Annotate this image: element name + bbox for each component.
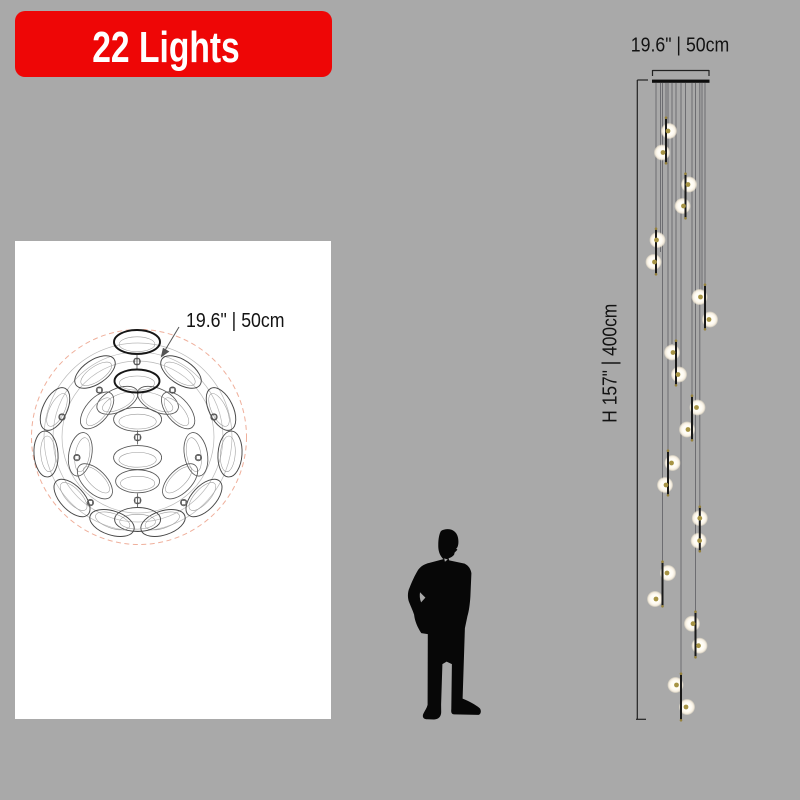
- svg-text:22 Lights: 22 Lights: [92, 23, 240, 72]
- svg-text:19.6" | 50cm: 19.6" | 50cm: [631, 35, 730, 57]
- svg-text:19.6" | 50cm: 19.6" | 50cm: [186, 310, 285, 332]
- svg-text:H 157" | 400cm: H 157" | 400cm: [599, 304, 621, 423]
